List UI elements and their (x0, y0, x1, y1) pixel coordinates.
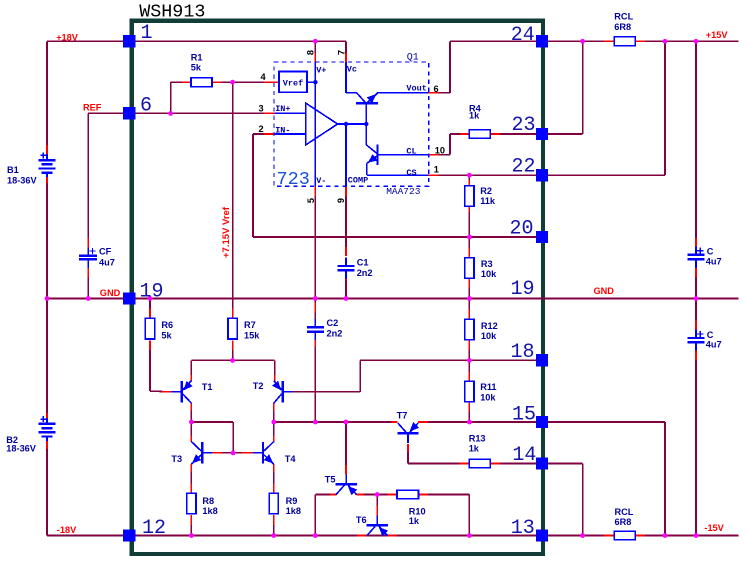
svg-text:T2: T2 (253, 381, 264, 391)
svg-text:R6: R6 (161, 320, 173, 330)
svg-text:CL: CL (406, 146, 416, 156)
svg-text:T4: T4 (285, 454, 297, 464)
svg-text:4u7: 4u7 (99, 257, 115, 267)
svg-text:6R8: 6R8 (615, 517, 632, 527)
svg-text:MAA723: MAA723 (386, 186, 421, 197)
svg-text:4u7: 4u7 (706, 340, 722, 350)
svg-text:Vc: Vc (347, 64, 357, 74)
svg-text:13: 13 (511, 517, 535, 540)
svg-text:T3: T3 (171, 454, 182, 464)
svg-text:R1: R1 (191, 52, 203, 62)
svg-text:V+: V+ (316, 65, 326, 75)
svg-text:T5: T5 (325, 475, 336, 485)
svg-text:RCL: RCL (614, 12, 633, 22)
svg-text:RCL: RCL (615, 507, 634, 517)
svg-text:R9: R9 (286, 496, 298, 506)
svg-text:-18V: -18V (57, 525, 77, 535)
svg-text:2n2: 2n2 (327, 329, 343, 339)
svg-text:COMP: COMP (348, 176, 368, 186)
svg-text:REF: REF (83, 102, 102, 112)
svg-text:R3: R3 (481, 259, 493, 269)
svg-text:4: 4 (261, 72, 267, 82)
svg-text:23: 23 (512, 114, 536, 137)
svg-text:5: 5 (306, 198, 316, 203)
svg-text:19: 19 (140, 281, 164, 304)
svg-text:9: 9 (336, 198, 346, 203)
svg-text:R8: R8 (202, 496, 214, 506)
svg-text:6: 6 (140, 94, 152, 117)
svg-text:18: 18 (511, 341, 535, 364)
svg-text:6: 6 (434, 84, 439, 94)
svg-text:R7: R7 (244, 320, 256, 330)
svg-text:19: 19 (511, 278, 535, 301)
svg-text:11k: 11k (480, 196, 496, 206)
svg-text:R2: R2 (480, 186, 492, 196)
svg-text:GND: GND (594, 286, 615, 296)
svg-text:10k: 10k (481, 331, 497, 341)
svg-text:T6: T6 (356, 515, 367, 525)
svg-text:Q1: Q1 (407, 53, 419, 64)
svg-text:5k: 5k (161, 330, 172, 340)
svg-text:18-36V: 18-36V (7, 175, 37, 185)
svg-text:IN-: IN- (275, 126, 290, 136)
svg-text:1k: 1k (409, 516, 420, 526)
svg-text:C: C (707, 247, 714, 257)
svg-text:18-36V: 18-36V (6, 444, 36, 454)
svg-text:C: C (707, 330, 714, 340)
svg-text:24: 24 (511, 24, 535, 47)
svg-text:3: 3 (259, 103, 264, 113)
svg-text:2: 2 (259, 124, 264, 134)
svg-text:R11: R11 (480, 382, 496, 392)
svg-text:1k: 1k (469, 444, 480, 454)
svg-text:15k: 15k (244, 330, 260, 340)
svg-text:5k: 5k (191, 63, 202, 73)
svg-text:Vref: Vref (283, 79, 303, 89)
svg-text:C2: C2 (327, 318, 339, 328)
svg-text:1: 1 (141, 22, 153, 45)
svg-text:10k: 10k (481, 269, 497, 279)
svg-text:12: 12 (142, 517, 166, 540)
svg-text:B1: B1 (7, 165, 19, 175)
svg-text:+7.15V Vref: +7.15V Vref (221, 206, 232, 258)
svg-text:+18V: +18V (56, 32, 79, 42)
svg-text:10: 10 (435, 145, 445, 155)
svg-text:R10: R10 (409, 507, 426, 517)
svg-text:WSH913: WSH913 (139, 1, 205, 22)
svg-text:T1: T1 (202, 382, 213, 392)
svg-text:Vout: Vout (406, 83, 426, 93)
svg-text:GND: GND (100, 288, 121, 298)
svg-text:C1: C1 (357, 258, 369, 268)
svg-text:CF: CF (99, 247, 112, 257)
svg-text:2n2: 2n2 (357, 268, 373, 278)
svg-text:IN+: IN+ (275, 104, 290, 114)
svg-text:8: 8 (305, 50, 315, 55)
svg-text:T7: T7 (397, 410, 408, 420)
svg-text:-15V: -15V (704, 523, 724, 533)
svg-text:1k: 1k (469, 111, 480, 121)
svg-text:7: 7 (336, 50, 346, 55)
svg-text:10k: 10k (480, 392, 496, 402)
svg-text:R12: R12 (481, 321, 498, 331)
svg-text:14: 14 (512, 444, 536, 467)
svg-text:723: 723 (277, 169, 310, 190)
svg-text:22: 22 (512, 156, 536, 179)
svg-text:6R8: 6R8 (614, 22, 631, 32)
svg-text:1k8: 1k8 (202, 506, 217, 516)
svg-text:+15V: +15V (706, 30, 729, 40)
svg-text:R13: R13 (469, 433, 486, 443)
svg-text:1k8: 1k8 (286, 506, 301, 516)
svg-text:20: 20 (510, 218, 534, 241)
svg-text:15: 15 (512, 403, 536, 426)
svg-text:4u7: 4u7 (706, 256, 722, 266)
svg-text:1: 1 (434, 164, 439, 174)
svg-text:CS: CS (406, 168, 416, 178)
svg-text:V-: V- (316, 176, 326, 186)
